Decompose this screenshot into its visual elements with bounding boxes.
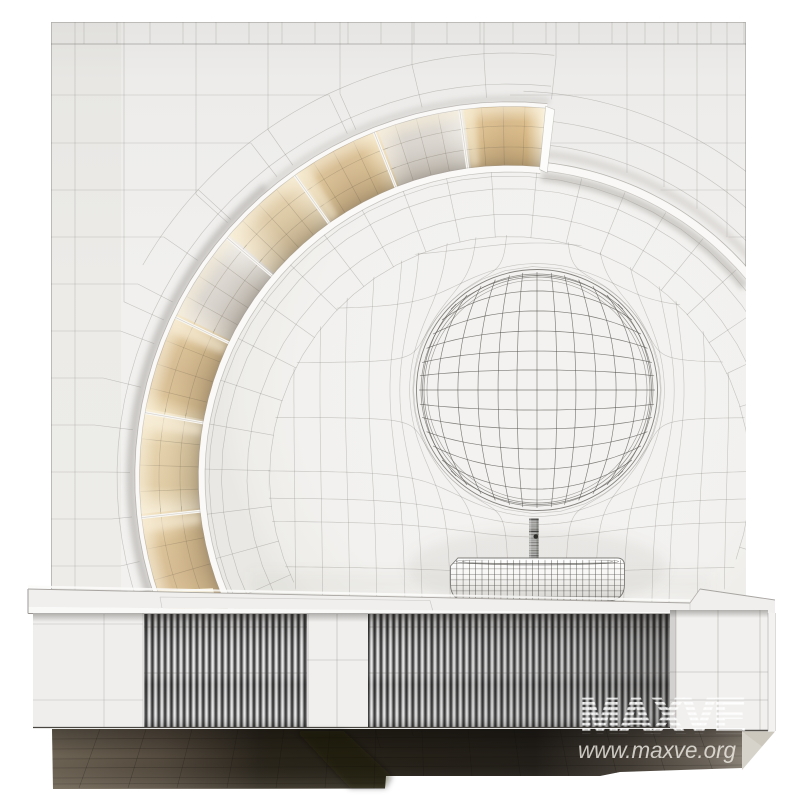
svg-text:MAXVE: MAXVE xyxy=(580,690,745,743)
svg-text:www.maxve.org: www.maxve.org xyxy=(578,737,736,763)
